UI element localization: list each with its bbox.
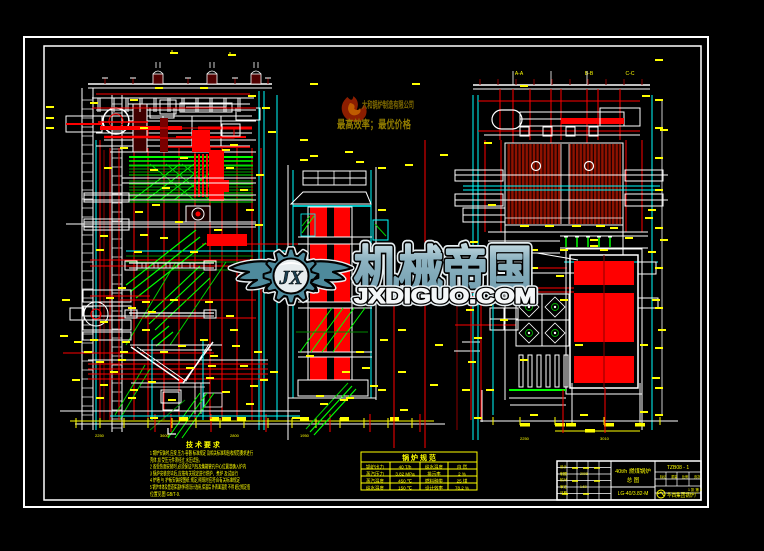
svg-text:技 术 要 求: 技 术 要 求 [186,440,221,449]
svg-text:1 锅炉安装时,应按 压力-容器 标准规定 及相关标准和验收: 1 锅炉安装时,应按 压力-容器 标准规定 及相关标准和验收规范要求进行 [150,449,253,457]
svg-text:比例: 比例 [682,474,688,479]
svg-text:A-A: A-A [515,71,524,77]
svg-text:校对: 校对 [560,477,568,482]
svg-text:2800: 2800 [230,433,240,438]
svg-text:C-C: C-C [626,71,635,77]
svg-text:大和锅炉制造有限公司: 大和锅炉制造有限公司 [362,99,414,110]
svg-text:1:50: 1:50 [580,485,587,489]
svg-text:蒸汽压力: 蒸汽压力 [366,471,384,478]
svg-text:1 张 第 1: 1 张 第 1 [688,487,702,492]
svg-text:25 煤: 25 煤 [457,478,468,485]
svg-text:40t/h 燃煤锅炉: 40t/h 燃煤锅炉 [615,467,651,475]
svg-text:蒸汽温度: 蒸汽温度 [366,478,384,485]
svg-text:LG-40/3.82-M: LG-40/3.82-M [618,491,649,497]
svg-text:华西集团锅炉厂: 华西集团锅炉厂 [667,491,699,499]
svg-text:燃料种类: 燃料种类 [425,478,443,485]
svg-text:壳体 加 受压元件须经过 水压试验。: 壳体 加 受压元件须经过 水压试验。 [150,456,202,464]
svg-text:审定: 审定 [560,484,568,489]
svg-text:页次: 页次 [694,474,701,479]
svg-text:3010: 3010 [600,436,610,441]
svg-text:给水温度: 给水温度 [425,464,443,471]
svg-text:给水温度: 给水温度 [366,485,384,492]
svg-text:位置见图 GB/T-9.: 位置见图 GB/T-9. [150,490,180,498]
svg-text:总 图: 总 图 [627,476,640,484]
svg-text:锅 炉 规 范: 锅 炉 规 范 [401,453,436,462]
svg-text:78.2 %: 78.2 % [455,486,469,491]
svg-text:2250: 2250 [95,433,105,438]
svg-text:排污率: 排污率 [427,471,441,478]
svg-text:2 各受热面安装时,必须保证汽包及集箱管孔中心位置准确入炉内: 2 各受热面安装时,必须保证汽包及集箱管孔中心位置准确入炉内 [150,463,246,471]
svg-text:40 T/h: 40 T/h [399,465,412,470]
svg-text:3 锅炉安装完毕后,应按有关规定进行烘炉、煮炉 及试运行: 3 锅炉安装完毕后,应按有关规定进行烘炉、煮炉 及试运行 [150,469,238,477]
svg-text:4 炉墙 与 护板安装按图纸 规定,砌筑时应符合有关标准规定: 4 炉墙 与 护板安装按图纸 规定,砌筑时应符合有关标准规定 [150,476,240,484]
svg-text:JXDIGUO.COM: JXDIGUO.COM [354,285,536,308]
svg-text:锅炉出力: 锅炉出力 [366,464,384,471]
svg-text:1950: 1950 [300,433,310,438]
svg-text:3600: 3600 [160,433,170,438]
svg-text:自 然: 自 然 [457,464,468,471]
svg-text:2250: 2250 [520,436,530,441]
svg-text:重量: 重量 [671,474,678,479]
svg-text:150 ℃: 150 ℃ [398,486,413,491]
svg-text:制图: 制图 [560,471,568,476]
svg-text:2 %: 2 % [458,472,466,477]
svg-text:B-B: B-B [585,71,594,77]
svg-text:3.82 MPa: 3.82 MPa [395,472,415,477]
svg-text:JX: JX [278,267,303,289]
svg-text:450 ℃: 450 ℃ [398,479,413,484]
svg-text:标记: 标记 [660,474,667,479]
svg-text:TZB08 - 1: TZB08 - 1 [667,465,689,471]
svg-text:设计: 设计 [560,464,568,469]
svg-text:设计效率: 设计效率 [425,485,443,492]
svg-text:5 锅炉本体及管道保温材料按设计选用,保温后 外表面温度 不: 5 锅炉本体及管道保温材料按设计选用,保温后 外表面温度 不得 超过规定值 [150,483,250,491]
svg-text:2008: 2008 [580,472,588,476]
svg-text:最高效率；最优价格: 最高效率；最优价格 [337,117,412,131]
